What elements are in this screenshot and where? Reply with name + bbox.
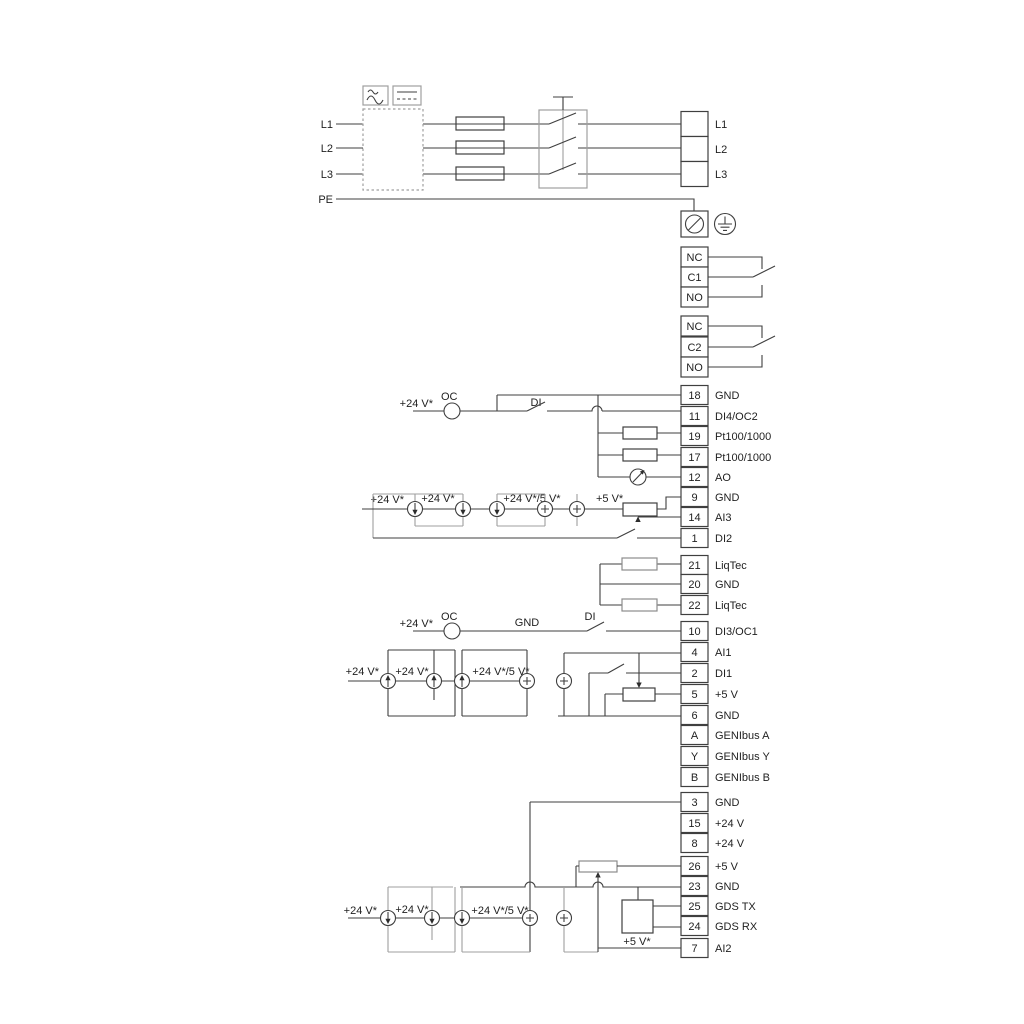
terminal-number-5: 5 xyxy=(691,689,697,701)
terminal-label-GENIbus-Y: GENIbus Y xyxy=(715,751,770,763)
rfi-filter xyxy=(363,86,423,190)
terminal-label-GND: GND xyxy=(715,492,740,504)
wiring-diagram: L1 L2 L3 PE L1L2L3 xyxy=(0,0,1024,1024)
ac-wave-icon xyxy=(367,96,383,104)
terminal-number-24: 24 xyxy=(688,921,700,933)
pe-terminal xyxy=(681,211,708,237)
terminal-number-22: 22 xyxy=(688,600,700,612)
terminal-number-4: 4 xyxy=(691,647,697,659)
wiring-diagram-page: L1 L2 L3 PE L1L2L3 xyxy=(0,0,1024,1024)
di2-switch-icon xyxy=(617,529,635,538)
switch-handle-icon xyxy=(553,97,573,110)
rfi-filter-box xyxy=(363,109,423,190)
terminal-number-8: 8 xyxy=(691,838,697,850)
terminal-label--24-V: +24 V xyxy=(715,818,745,830)
ai1-wiper-arrow-icon xyxy=(636,683,641,689)
terminal-number-10: 10 xyxy=(688,626,700,638)
terminal-label-L3: L3 xyxy=(715,169,727,181)
terminal-number-Y: Y xyxy=(691,751,699,763)
terminal-label-DI2: DI2 xyxy=(715,533,732,545)
di3-oc-label: OC xyxy=(441,611,458,623)
pt100-resistor-1-icon xyxy=(623,427,657,439)
terminal-label-DI4-OC2: DI4/OC2 xyxy=(715,411,758,423)
ai3-section: +24 V* +24 V* +24 V*/5 V* +5 V* xyxy=(362,493,681,538)
terminal-label-L1: L1 xyxy=(715,119,727,131)
ai1-potentiometer-icon xyxy=(623,688,655,701)
ac-sine-icon xyxy=(368,90,378,94)
terminal-number-21: 21 xyxy=(688,560,700,572)
terminal-number-1: 1 xyxy=(691,533,697,545)
terminal-group-2: 21LiqTec20GND22LiqTec xyxy=(681,556,747,615)
di4-plus24-label: +24 V* xyxy=(400,398,434,410)
earth-symbol xyxy=(715,214,736,235)
open-collector-2-icon xyxy=(444,623,460,639)
terminal-label--5-V: +5 V xyxy=(715,689,739,701)
ac-symbol-box xyxy=(363,86,388,105)
terminal-label-AI1: AI1 xyxy=(715,647,732,659)
terminal-number-6: 6 xyxy=(691,710,697,722)
di3-plus24-label: +24 V* xyxy=(400,618,434,630)
terminal-number-NC: NC xyxy=(687,321,703,333)
terminal-number-C1: C1 xyxy=(687,272,701,284)
relay1-blade-icon xyxy=(753,266,775,277)
relay1-terminals: NCC1NO xyxy=(681,247,708,307)
terminal-number-26: 26 xyxy=(688,861,700,873)
mains-wires xyxy=(336,124,694,211)
terminal-number-20: 20 xyxy=(688,579,700,591)
di3-section: +24 V* OC GND DI xyxy=(400,611,681,639)
terminal-label-GDS-TX: GDS TX xyxy=(715,901,756,913)
terminal-number-18: 18 xyxy=(688,390,700,402)
terminal-label-GND: GND xyxy=(715,390,740,402)
terminal-label-DI1: DI1 xyxy=(715,668,732,680)
liqtec-resistor-2-icon xyxy=(622,599,657,611)
relay2-blade-icon xyxy=(753,336,775,347)
terminal-label-Pt100-1000: Pt100/1000 xyxy=(715,452,771,464)
terminal-box-L2 xyxy=(681,137,708,162)
terminal-group-3: 10DI3/OC14AI12DI15+5 V6GNDAGENIbus AYGEN… xyxy=(681,622,770,787)
dc-symbol-box xyxy=(393,86,421,105)
ai2-plus24a-label: +24 V* xyxy=(344,905,378,917)
ai3-plus24a-label: +24 V* xyxy=(371,494,405,506)
ai1-plus24b-label: +24 V* xyxy=(395,666,429,678)
di3-di-label: DI xyxy=(585,611,596,623)
terminal-label-LiqTec: LiqTec xyxy=(715,600,747,612)
relay1-contact xyxy=(708,257,775,297)
di3-gnd-label: GND xyxy=(515,617,540,629)
label-l2-in: L2 xyxy=(321,143,333,155)
ai3-plus5-label: +5 V* xyxy=(596,493,624,505)
terminal-box-L3 xyxy=(681,162,708,187)
ai3-plus24-5-label: +24 V*/5 V* xyxy=(503,493,561,505)
ai2-section: +24 V* +24 V* +24 V*/5 V* +5 V* xyxy=(344,802,681,952)
terminal-number-2: 2 xyxy=(691,668,697,680)
terminal-number-14: 14 xyxy=(688,512,700,524)
terminal-number-11: 11 xyxy=(689,411,700,423)
terminal-number-23: 23 xyxy=(688,881,700,893)
terminal-group-1: 18GND11DI4/OC219Pt100/100017Pt100/100012… xyxy=(681,386,771,548)
ai2-plus5-label: +5 V* xyxy=(623,936,651,948)
terminal-label-GND: GND xyxy=(715,797,740,809)
terminal-label-GND: GND xyxy=(715,579,740,591)
terminal-label-GENIbus-A: GENIbus A xyxy=(715,730,770,742)
ai2-plus24-5-label: +24 V*/5 V* xyxy=(471,905,529,917)
label-pe-in: PE xyxy=(318,194,333,206)
liqtec-resistor-1-icon xyxy=(622,558,657,570)
terminal-number-3: 3 xyxy=(691,797,697,809)
terminal-label--5-V: +5 V xyxy=(715,861,739,873)
label-l3-in: L3 xyxy=(321,169,333,181)
di4-section: +24 V* OC DI xyxy=(400,391,681,485)
liqtec-section xyxy=(600,558,681,611)
di3-switch-icon xyxy=(587,622,604,631)
mains-terminal-block: L1L2L3 xyxy=(681,112,727,187)
terminal-label-AO: AO xyxy=(715,472,731,484)
ai3-potentiometer-icon xyxy=(623,503,657,516)
terminal-label-GND: GND xyxy=(715,710,740,722)
terminal-label-LiqTec: LiqTec xyxy=(715,560,747,572)
terminal-number-NO: NO xyxy=(686,292,703,304)
terminal-label-AI2: AI2 xyxy=(715,943,732,955)
ai2-potentiometer-icon xyxy=(579,861,617,872)
mains-input-labels: L1 L2 L3 PE xyxy=(318,119,333,206)
terminal-number-15: 15 xyxy=(688,818,700,830)
gds-sensor-box xyxy=(622,900,653,933)
ai1-section: +24 V* +24 V* +24 V*/5 V* xyxy=(346,650,681,716)
di4-di-label: DI xyxy=(531,397,542,409)
open-collector-icon xyxy=(444,403,460,419)
di4-oc-label: OC xyxy=(441,391,458,403)
terminal-label-GDS-RX: GDS RX xyxy=(715,921,758,933)
ai3-plus24b-label: +24 V* xyxy=(421,493,455,505)
terminal-number-9: 9 xyxy=(691,492,697,504)
terminal-number-A: A xyxy=(691,730,699,742)
terminal-label-AI3: AI3 xyxy=(715,512,732,524)
di1-switch-icon xyxy=(608,664,624,673)
terminal-label-L2: L2 xyxy=(715,144,727,156)
terminal-number-C2: C2 xyxy=(687,342,701,354)
terminal-label-DI3-OC1: DI3/OC1 xyxy=(715,626,758,638)
terminal-number-19: 19 xyxy=(688,431,700,443)
pt100-resistor-2-icon xyxy=(623,449,657,461)
ai1-plus24a-label: +24 V* xyxy=(346,666,380,678)
terminal-label-Pt100-1000: Pt100/1000 xyxy=(715,431,771,443)
terminal-number-17: 17 xyxy=(688,452,700,464)
terminal-number-7: 7 xyxy=(691,943,697,955)
terminal-number-B: B xyxy=(691,772,698,784)
terminal-label--24-V: +24 V xyxy=(715,838,745,850)
terminal-number-NC: NC xyxy=(687,252,703,264)
terminal-number-NO: NO xyxy=(686,362,703,374)
terminal-label-GND: GND xyxy=(715,881,740,893)
terminal-number-25: 25 xyxy=(688,901,700,913)
terminal-group-4: 3GND15+24 V8+24 V26+5 V23GND25GDS TX24GD… xyxy=(681,793,758,958)
ai2-plus24b-label: +24 V* xyxy=(395,904,429,916)
label-l1-in: L1 xyxy=(321,119,333,131)
terminal-number-12: 12 xyxy=(688,472,700,484)
terminal-box-L1 xyxy=(681,112,708,137)
relay2-contact xyxy=(708,326,775,367)
terminal-label-GENIbus-B: GENIbus B xyxy=(715,772,770,784)
relay2-terminals: NCC2NO xyxy=(681,316,708,377)
